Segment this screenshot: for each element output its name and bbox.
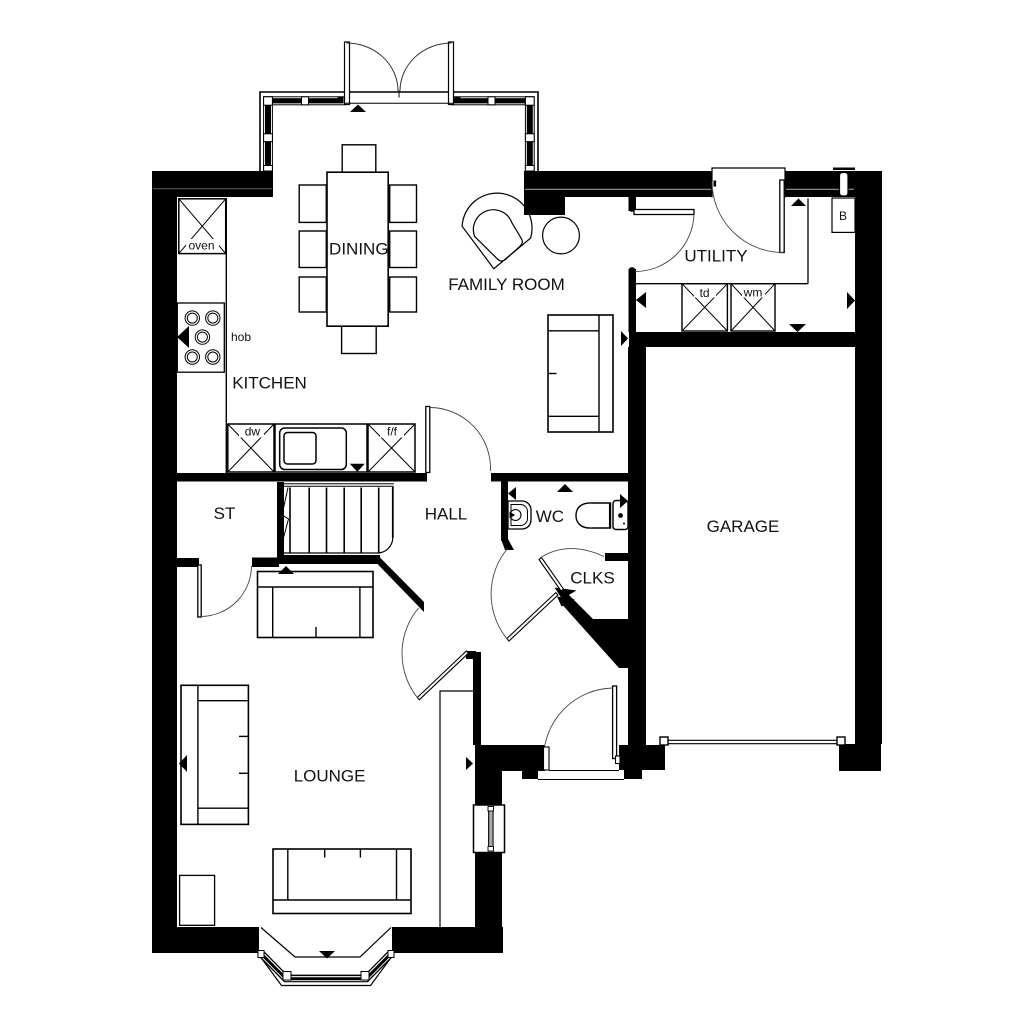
svg-text:CLKS: CLKS <box>570 568 614 587</box>
svg-text:WC: WC <box>536 507 564 526</box>
svg-text:FAMILY ROOM: FAMILY ROOM <box>448 275 565 294</box>
svg-text:KITCHEN: KITCHEN <box>232 374 307 393</box>
svg-text:UTILITY: UTILITY <box>684 247 747 266</box>
svg-text:ST: ST <box>214 504 236 523</box>
svg-text:f/f: f/f <box>387 425 398 439</box>
svg-text:HALL: HALL <box>425 505 468 524</box>
svg-text:GARAGE: GARAGE <box>707 517 780 536</box>
svg-text:oven: oven <box>188 239 214 253</box>
svg-text:td: td <box>700 286 710 300</box>
svg-text:wm: wm <box>743 286 763 300</box>
svg-text:DINING: DINING <box>329 240 389 259</box>
svg-text:hob: hob <box>231 330 251 344</box>
svg-text:dw: dw <box>245 425 261 439</box>
svg-text:LOUNGE: LOUNGE <box>294 767 366 786</box>
svg-text:B: B <box>839 209 847 223</box>
